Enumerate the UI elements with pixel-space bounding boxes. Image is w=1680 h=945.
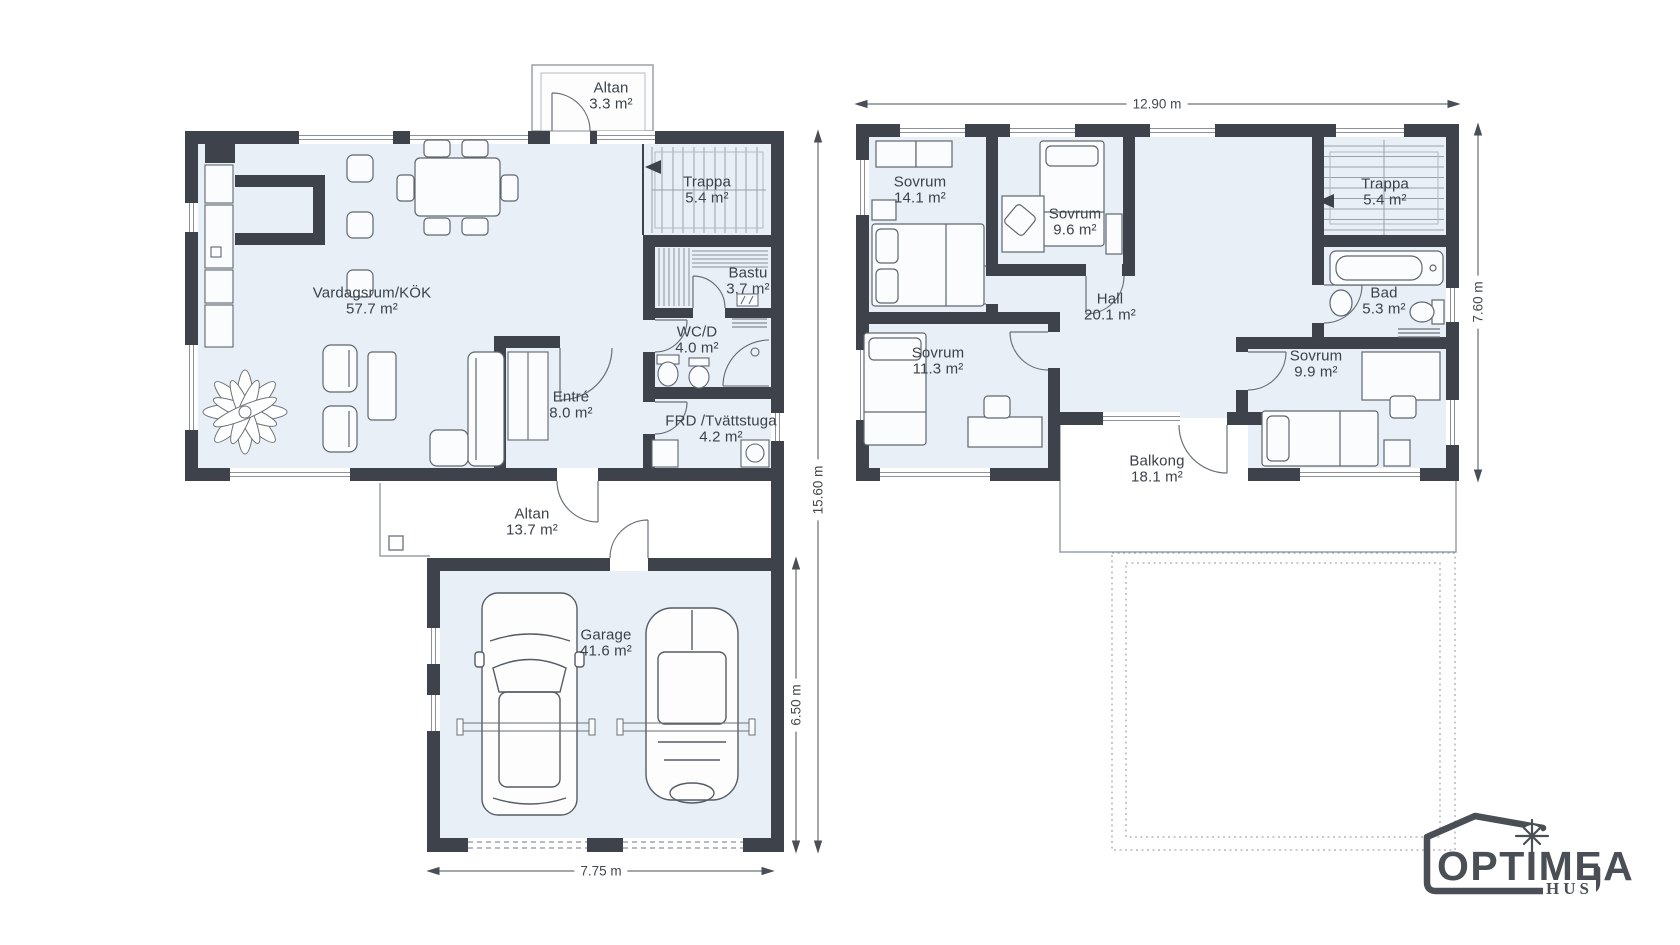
room-label-sovrum-113: Sovrum 11.3 m² <box>912 346 965 377</box>
room-label-sovrum-96: Sovrum 9.6 m² <box>1049 207 1102 238</box>
floorplan-canvas: Altan 3.3 m² Trappa 5.4 m² Vardagsrum/KÖ… <box>0 0 1680 945</box>
room-label-bastu: Bastu 3.7 m² <box>726 266 769 297</box>
car-classic <box>646 608 738 803</box>
room-label-frd: FRD /Tvättstuga 4.2 m² <box>665 414 776 445</box>
altan-lower-outline <box>380 481 771 558</box>
room-label-sovrum-99: Sovrum 9.9 m² <box>1290 349 1343 380</box>
room-label-hall: Hall 20.1 m² <box>1084 292 1136 323</box>
floor2-plan <box>856 124 1459 850</box>
dimension-floor2-width: 12.90 m <box>1127 97 1188 112</box>
room-label-balkong: Balkong 18.1 m² <box>1129 454 1184 485</box>
floorplan-drawing <box>0 0 1680 945</box>
room-label-sovrum-14: Sovrum 14.1 m² <box>894 175 947 206</box>
logo-sub-text: HUS <box>1543 880 1596 897</box>
dimension-floor2-height: 7.60 m <box>1471 275 1486 328</box>
room-label-entre: Entré 8.0 m² <box>549 390 592 421</box>
dimension-garage-height: 6.50 m <box>789 678 804 731</box>
room-label-trappa-f1: Trappa 5.4 m² <box>683 175 731 206</box>
coffee-table <box>368 352 396 420</box>
dimension-garage-width: 7.75 m <box>574 864 627 879</box>
room-label-altan-top: Altan 3.3 m² <box>589 81 632 112</box>
room-label-wcd: WC/D 4.0 m² <box>675 325 718 356</box>
room-label-vardagsrum: Vardagsrum/KÖK 57.7 m² <box>313 286 432 317</box>
plant <box>203 370 287 454</box>
room-label-bad: Bad 5.3 m² <box>1362 286 1405 317</box>
dimension-house-height: 15.60 m <box>811 460 826 521</box>
car-suv <box>475 593 584 815</box>
bar-stools <box>347 155 373 297</box>
kitchen-appliances <box>205 138 235 347</box>
room-label-trappa-f2: Trappa 5.4 m² <box>1361 177 1409 208</box>
room-label-garage: Garage 41.6 m² <box>580 628 632 659</box>
room-label-altan-lower: Altan 13.7 m² <box>506 507 558 538</box>
garage-footprint-dashed <box>1112 553 1455 850</box>
logo-brand-text: OPTIMEA <box>1437 846 1634 887</box>
